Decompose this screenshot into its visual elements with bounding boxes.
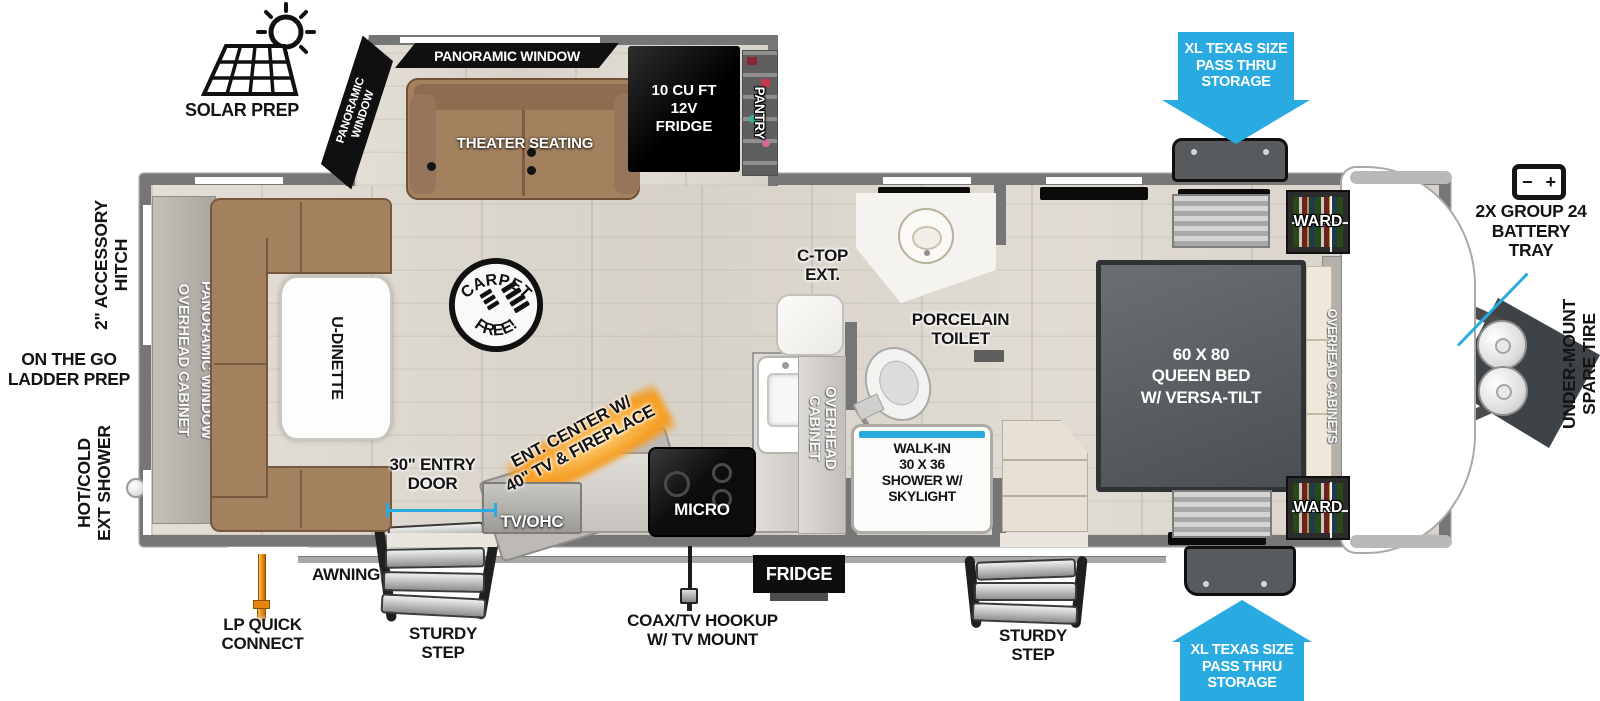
entry-door-dimension-line — [387, 509, 497, 512]
u-dinette-label: U-DINETTE — [326, 283, 346, 433]
rear-window-trim — [143, 205, 151, 345]
micro-stove — [648, 447, 756, 537]
ext-shower-label: HOT/COLD EXT SHOWER — [75, 408, 115, 558]
coax-label: COAX/TV HOOKUP W/ TV MOUNT — [605, 611, 800, 649]
micro-label: MICRO — [658, 500, 746, 519]
under-mount-spare-tire-label: UNDER-MOUNT SPARE TIRE — [1557, 279, 1600, 449]
coax-plug-pin — [687, 604, 692, 611]
sofa-cupholder-icon — [427, 162, 436, 171]
wall-trim — [1046, 177, 1142, 184]
wardrobe-bottom: WARD — [1286, 476, 1350, 540]
passthru-arrow-bottom-label: XL TEXAS SIZE PASS THRU STORAGE — [1191, 642, 1294, 692]
step-edge — [1003, 459, 1087, 461]
step-tread — [972, 602, 1079, 625]
wardrobe-top: WARD — [1286, 190, 1350, 254]
step-tread — [974, 582, 1077, 601]
pantry-label: PANTRY — [751, 40, 769, 186]
awning-label: AWNING — [296, 565, 396, 584]
passthru-arrow-top-head — [1162, 100, 1310, 144]
ward-label: WARD — [1288, 213, 1348, 231]
queen-bed-label: 60 X 80 QUEEN BED W/ VERSA-TILT — [1141, 344, 1261, 408]
lp-quick-connect-label: LP QUICK CONNECT — [200, 615, 325, 653]
faucet-icon — [924, 250, 930, 256]
step-tread — [976, 558, 1077, 580]
tank-valve — [1495, 338, 1511, 354]
bedroom-steps-exterior — [968, 556, 1088, 636]
battery-plus: + — [1545, 172, 1556, 193]
battery-icon: − + — [1512, 164, 1566, 200]
fridge-12v: 10 CU FT 12V FRIDGE — [628, 46, 740, 172]
panoramic-window-band-top: PANORAMIC WINDOW — [395, 43, 619, 68]
wall-trim — [195, 177, 283, 184]
sink-bowl — [912, 226, 942, 250]
rivet — [1191, 149, 1197, 155]
faucet-icon — [782, 362, 789, 369]
battery-minus: − — [1522, 172, 1533, 193]
solar-prep-icon — [168, 2, 328, 102]
front-cap — [1340, 166, 1476, 554]
bath-wall — [845, 322, 857, 410]
slideout-wall-trim — [400, 37, 600, 43]
sturdy-step-label: STURDY STEP — [988, 626, 1078, 664]
shower-label: WALK-IN 30 X 36 SHOWER W/ SKYLIGHT — [858, 440, 986, 504]
passthru-door-bottom — [1184, 546, 1296, 596]
lp-quick-connect-pipe — [258, 548, 266, 602]
carpet-free-badge: CARPET FREE! — [447, 256, 545, 354]
dinette-seam — [300, 470, 302, 528]
burner-icon — [664, 471, 690, 497]
dinette-seam — [214, 363, 266, 365]
rivet — [1261, 581, 1267, 587]
accessory-hitch-label: 2" ACCESSORY HITCH — [92, 190, 132, 340]
propane-tank — [1477, 320, 1527, 370]
passthru-arrow-bottom-head — [1172, 600, 1312, 642]
propane-tank — [1478, 366, 1528, 416]
kitchen-overhead-cabinet-label: OVERHEAD CABINET — [805, 363, 839, 493]
dinette-bench-left — [210, 238, 268, 498]
dinette-seam — [300, 202, 302, 272]
bedroom-door-opening — [1000, 533, 1088, 547]
coax-plug-icon — [680, 588, 698, 604]
step-tread — [383, 571, 485, 593]
coax-cable — [688, 546, 692, 590]
porcelain-toilet-label: PORCELAIN TOILET — [888, 310, 1033, 348]
shower: WALK-IN 30 X 36 SHOWER W/ SKYLIGHT — [851, 424, 993, 534]
vanity-sink — [898, 208, 954, 264]
ward-label: WARD — [1288, 499, 1348, 517]
sofa-console-divider — [522, 110, 525, 196]
battery-tray-label: 2X GROUP 24 BATTERY TRAY — [1462, 202, 1600, 261]
bath-half-wall — [974, 350, 1004, 362]
step-tread — [385, 547, 485, 569]
wall-trim — [228, 547, 308, 554]
passthru-door-top — [1172, 138, 1288, 182]
sturdy-step-label: STURDY STEP — [398, 624, 488, 662]
sofa-cupholder-icon — [527, 166, 536, 175]
step-tread — [381, 593, 487, 618]
ladder-prep-label: ON THE GO LADDER PREP — [0, 350, 138, 389]
shower-skylight-strip — [859, 431, 985, 438]
ctop-ext-counter — [776, 294, 844, 356]
wall-trim — [883, 177, 971, 184]
fridge-12v-label: 10 CU FT 12V FRIDGE — [651, 82, 716, 136]
passthru-arrow-top: XL TEXAS SIZE PASS THRU STORAGE — [1178, 32, 1294, 100]
burner-icon — [712, 463, 732, 483]
rear-window-trim — [143, 470, 151, 535]
solar-panel-icon — [204, 46, 296, 94]
tank-valve — [1496, 384, 1512, 400]
ctop-ext-label: C-TOP EXT. — [770, 246, 875, 284]
floorplan-canvas: AWNING PANORAMIC WINDOW PANORAMIC WINDOW… — [0, 0, 1600, 701]
rivet — [1263, 149, 1269, 155]
cap-trim — [1350, 171, 1452, 184]
exterior-fridge-label: FRIDGE — [766, 564, 832, 585]
passthru-arrow-bottom: XL TEXAS SIZE PASS THRU STORAGE — [1180, 642, 1304, 701]
solar-prep-label: SOLAR PREP — [172, 100, 312, 120]
rear-overhead-cabinet-label: OVERHEAD CABINET — [173, 200, 195, 520]
bed-overhead-cabinets-label: OVERHEAD CABINETS — [1325, 256, 1339, 496]
window-bar — [1040, 187, 1148, 200]
sofa-backrest — [414, 84, 632, 110]
dimension-tick — [386, 503, 389, 517]
bedroom-dresser-bottom — [1172, 490, 1272, 538]
cap-trim — [1350, 535, 1452, 548]
rivet — [1203, 581, 1209, 587]
step-edge — [1003, 495, 1087, 497]
theater-seating-label: THEATER SEATING — [425, 136, 625, 153]
exterior-fridge-panel: FRIDGE — [753, 555, 845, 593]
panoramic-window-top-label: PANORAMIC WINDOW — [434, 48, 580, 64]
bedroom-dresser-top — [1172, 194, 1270, 248]
entry-door-opening — [387, 533, 497, 547]
exterior-fridge-step — [770, 592, 828, 601]
queen-bed: 60 X 80 QUEEN BED W/ VERSA-TILT — [1096, 260, 1306, 492]
passthru-arrow-top-label: XL TEXAS SIZE PASS THRU STORAGE — [1185, 41, 1288, 91]
